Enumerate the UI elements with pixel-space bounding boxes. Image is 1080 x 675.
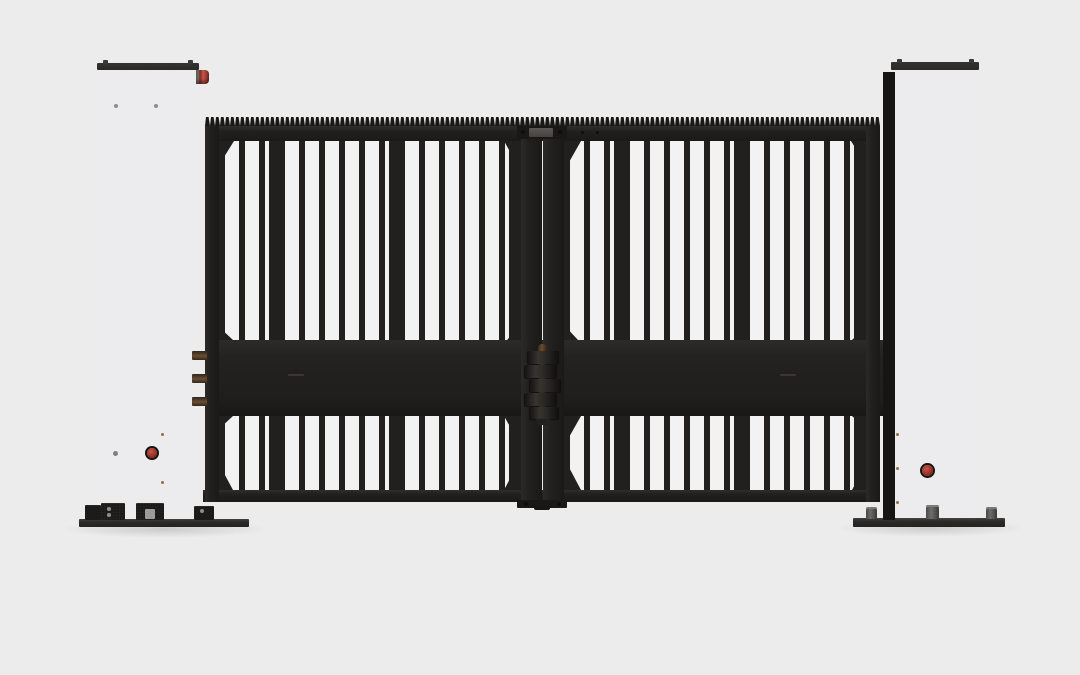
hinge-knuckle-5: [529, 407, 559, 419]
hinge-knuckle-1: [527, 351, 559, 364]
right-post-cap-bolt-right: [969, 59, 974, 63]
left-leaf-upper-bars: [219, 141, 521, 340]
left-post-cap: [97, 63, 199, 70]
hinge-knuckle-4: [524, 393, 557, 406]
left-post-cap-bolt-left: [103, 60, 108, 64]
render-stage: [0, 0, 1080, 675]
left-hinge-lug-1: [192, 351, 207, 360]
left-post-indicator-light: [196, 70, 209, 84]
top-center-bracket-plate: [529, 128, 553, 137]
right-leaf-outer-stile: [866, 126, 880, 502]
mid-rail-seam-3: [780, 374, 796, 376]
right-post-body: [895, 70, 977, 520]
right-anchor-stud-3: [986, 507, 997, 519]
top-rail-bolt-1: [581, 131, 584, 134]
left-post-face-bolt-1: [114, 104, 118, 108]
right-anchor-stud-1: [866, 507, 877, 519]
top-bracket-bolt-left: [521, 130, 525, 134]
left-post-amber-dot-2: [161, 481, 164, 484]
right-post-red-button: [922, 465, 933, 476]
hinge-knuckle-2: [524, 365, 557, 378]
left-post-lower-bolt: [113, 451, 118, 456]
left-leaf-outer-stile: [205, 126, 219, 502]
bottom-bracket-bolt-left: [524, 502, 528, 506]
top-bracket-bolt-right: [558, 130, 562, 134]
left-foot-bracket-1: [85, 505, 101, 520]
left-post-base-plate: [79, 519, 249, 527]
left-leaf-lower-bars: [219, 416, 521, 490]
right-post-cap: [891, 62, 979, 70]
right-post-amber-dot-1: [896, 433, 899, 436]
right-post-amber-dot-3: [896, 501, 899, 504]
top-rail-bolt-2: [596, 131, 599, 134]
left-post-amber-dot-1: [161, 433, 164, 436]
hinge-knuckle-3: [529, 379, 561, 392]
center-hinge-bottom-tip: [536, 419, 549, 425]
left-post-cap-bolt-right: [188, 60, 193, 64]
right-post-cap-bolt-left: [897, 59, 902, 63]
gear-rack-teeth-strip: [205, 117, 880, 126]
right-post-side-face: [883, 72, 895, 520]
right-leaf-upper-bars: [564, 141, 866, 340]
right-post-amber-dot-2: [896, 467, 899, 470]
left-post-face-bolt-2: [154, 104, 158, 108]
bottom-bracket-bolt-right: [557, 502, 561, 506]
left-foot-bolt-3: [200, 509, 204, 513]
left-post-red-button: [147, 448, 157, 458]
left-leaf-center-stile: [521, 126, 542, 502]
mid-rail-seam-1: [288, 374, 304, 376]
left-foot-bracket-4: [194, 506, 214, 520]
left-hinge-lug-2: [192, 374, 207, 383]
right-leaf-center-stile: [543, 126, 564, 502]
bottom-bracket-tab: [534, 506, 550, 510]
right-leaf-lower-bars: [564, 416, 866, 490]
left-hinge-lug-3: [192, 397, 207, 406]
